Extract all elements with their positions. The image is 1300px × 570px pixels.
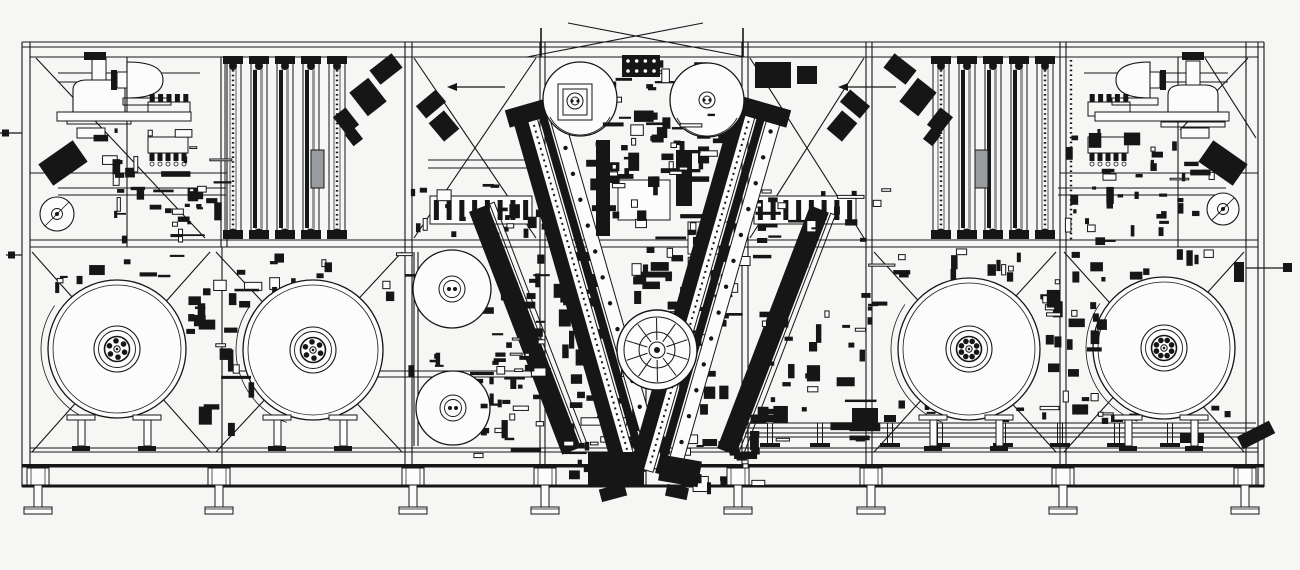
material-reel-3: [891, 278, 1040, 451]
sensor-rod-right: [1234, 262, 1292, 282]
valve-block-dotted: [622, 55, 660, 77]
hopper-side-right: [1112, 62, 1166, 105]
comb-manifold-1: [148, 137, 188, 166]
material-reel-1: [41, 280, 186, 451]
material-reel-2: [236, 280, 383, 451]
material-reel-4: [1086, 277, 1235, 451]
machine-line-drawing: [0, 0, 1300, 570]
panel-box-1: [1095, 112, 1229, 121]
process-roll-upper: [413, 250, 491, 328]
panel-box-3: [1181, 128, 1209, 138]
cad-screenshot: [0, 0, 1300, 570]
gable-brace: [527, 23, 745, 57]
process-roll-lower: [416, 371, 490, 445]
track-columns-right: [931, 56, 1055, 239]
idler-roll-right: [1207, 193, 1239, 225]
edge-stubs-left: [0, 130, 22, 259]
turret-gear: [617, 310, 697, 390]
panel-box-0: [57, 112, 191, 121]
machinery-cluster-0: [94, 128, 232, 243]
track-columns-left: [223, 56, 347, 239]
idler-roll-left: [40, 197, 74, 231]
